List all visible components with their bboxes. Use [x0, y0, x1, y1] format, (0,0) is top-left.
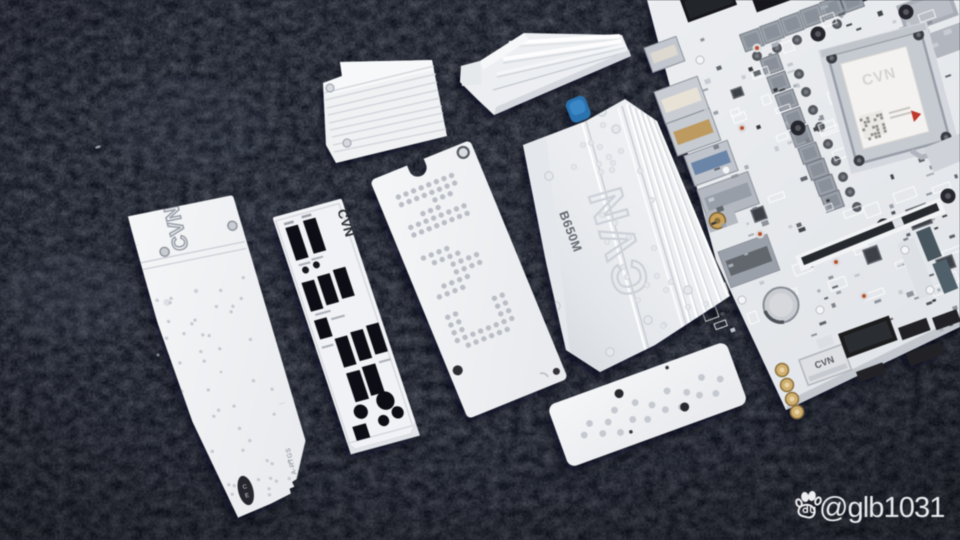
svg-text:@glb1031: @glb1031	[819, 492, 944, 524]
